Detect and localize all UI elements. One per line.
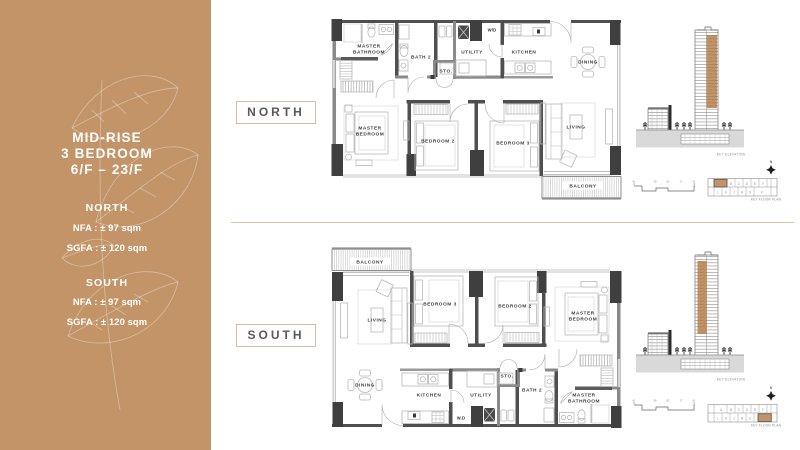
svg-text:KEY ELEVATION: KEY ELEVATION: [717, 378, 746, 382]
svg-text:G: G: [749, 417, 752, 421]
svg-text:KEY FLOOR PLAN: KEY FLOOR PLAN: [751, 424, 782, 428]
svg-text:BEDROOM: BEDROOM: [356, 132, 385, 138]
svg-text:STO.: STO.: [500, 374, 513, 380]
svg-text:BATHROOM: BATHROOM: [353, 50, 385, 56]
svg-text:41: 41: [633, 180, 636, 184]
svg-text:41: 41: [693, 399, 696, 403]
svg-text:BEDROOM: BEDROOM: [569, 317, 598, 323]
svg-text:41: 41: [693, 180, 696, 184]
svg-text:LIVING: LIVING: [368, 318, 387, 324]
svg-text:BEDROOM 2: BEDROOM 2: [421, 139, 455, 145]
svg-text:58: 58: [654, 399, 657, 403]
svg-text:KITCHEN: KITCHEN: [512, 50, 537, 56]
svg-text:W.D: W.D: [457, 416, 466, 421]
svg-text:BEDROOM 3: BEDROOM 3: [423, 302, 457, 308]
svg-text:STO.: STO.: [439, 69, 452, 75]
svg-text:BALCONY: BALCONY: [569, 184, 597, 190]
svg-text:W/D: W/D: [488, 28, 497, 33]
svg-text:KITCHEN: KITCHEN: [417, 393, 442, 399]
svg-text:DINING: DINING: [578, 60, 598, 66]
svg-text:DINING: DINING: [355, 383, 375, 389]
svg-text:F: F: [761, 191, 763, 195]
svg-text:BATHROOM: BATHROOM: [568, 399, 600, 405]
svg-text:L: L: [717, 191, 719, 195]
svg-text:UTILITY: UTILITY: [470, 393, 492, 399]
svg-text:KEY ELEVATION: KEY ELEVATION: [717, 153, 746, 157]
svg-text:MASTER: MASTER: [571, 311, 594, 317]
svg-text:17: 17: [680, 399, 683, 403]
svg-text:N: N: [770, 160, 773, 164]
svg-text:LIVING: LIVING: [567, 125, 586, 131]
svg-text:J: J: [733, 191, 735, 195]
svg-text:58: 58: [654, 180, 657, 184]
svg-text:17: 17: [680, 180, 683, 184]
svg-text:G: G: [749, 191, 752, 195]
svg-text:N: N: [770, 386, 773, 390]
svg-text:F: F: [762, 408, 764, 412]
svg-text:KEY FLOOR PLAN: KEY FLOOR PLAN: [751, 198, 782, 202]
svg-text:BATH 2: BATH 2: [522, 388, 542, 394]
svg-text:BALCONY: BALCONY: [356, 260, 384, 266]
svg-text:41: 41: [633, 399, 636, 403]
svg-text:82: 82: [667, 180, 670, 184]
svg-text:F: F: [762, 182, 764, 186]
svg-text:MASTER: MASTER: [358, 126, 381, 132]
svg-text:MASTER: MASTER: [572, 393, 595, 399]
svg-text:MASTER: MASTER: [357, 44, 380, 50]
svg-text:L: L: [717, 417, 719, 421]
svg-text:UTILITY: UTILITY: [461, 50, 483, 56]
svg-text:J: J: [733, 417, 735, 421]
svg-text:82: 82: [667, 399, 670, 403]
svg-text:BATH 2: BATH 2: [411, 55, 431, 61]
svg-text:BEDROOM 3: BEDROOM 3: [496, 141, 530, 147]
svg-text:BEDROOM 2: BEDROOM 2: [498, 304, 532, 310]
